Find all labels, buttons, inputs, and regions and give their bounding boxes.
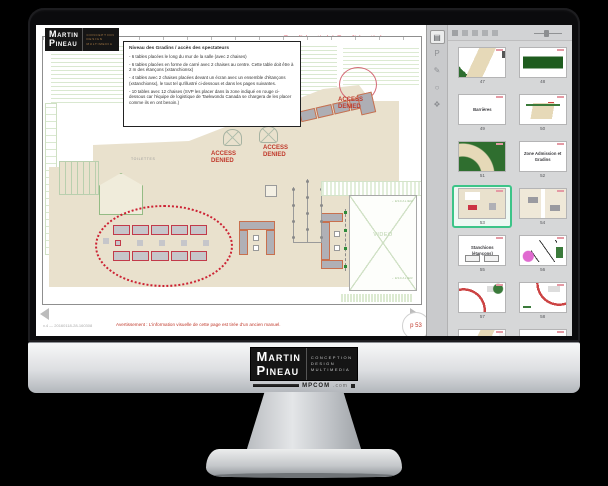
note-bullet: 10 tables avec 12 chaises (SVP les place…: [129, 89, 295, 106]
thumbnail-image[interactable]: [519, 282, 567, 313]
escalier-label: ESCALIER: [392, 276, 413, 280]
monitor-chin: Martin Pineau CONCEPTION DESIGN MULTIMED…: [28, 342, 580, 393]
stanchion-line: [293, 187, 294, 243]
thumbnail-number: 50: [540, 126, 545, 131]
monitor-brand: Martin Pineau CONCEPTION DESIGN MULTIMED…: [28, 343, 580, 393]
brand-tagline: CONCEPTION DESIGN MULTIMEDIA: [306, 348, 357, 379]
screen: Martin Pineau CONCEPTION DESIGN MULTIMED…: [36, 25, 572, 336]
page-thumbnail-51[interactable]: 51: [452, 138, 512, 181]
thumbnail-art: [459, 330, 505, 336]
logo-name-bottom: Pineau: [49, 39, 78, 48]
video-label: VIDEO: [373, 232, 393, 238]
page-thumbnail-48[interactable]: 48: [513, 44, 572, 87]
thumbnail-image[interactable]: [458, 188, 506, 219]
chairs-row: [115, 240, 121, 246]
document-logo: Martin Pineau CONCEPTION DESIGN MULTIMED…: [45, 28, 119, 51]
table: [132, 225, 149, 235]
thumbnail-number: 56: [540, 267, 545, 272]
stanchions-group: [289, 179, 325, 245]
table: [239, 221, 275, 230]
page-thumbnail-58[interactable]: 58: [513, 279, 572, 322]
table: [190, 251, 207, 261]
page-thumbnail-60[interactable]: Rideaux 60: [513, 326, 572, 336]
access-denied-label: ACCESS DENIED: [263, 145, 295, 159]
thumbnail-image[interactable]: [458, 47, 506, 78]
table: [190, 225, 207, 235]
barrier-posts: [344, 211, 347, 214]
note-bullet: 4 tables avec 2 chaises placées devant u…: [129, 75, 295, 86]
access-denied-label: ACCESS DENIED: [338, 97, 370, 111]
table: [151, 251, 168, 261]
toolbar-buttons-icon[interactable]: [452, 30, 458, 36]
stanchion-line: [307, 179, 308, 243]
red-dotted-zone: [95, 205, 233, 287]
brand-wordmark: Martin Pineau: [251, 348, 305, 379]
thumbnail-art: [459, 189, 505, 218]
table: [171, 225, 188, 235]
slide-canvas: TOILETTES ACCESS DENIED ACCESS DENIED AC…: [42, 36, 422, 305]
table: [321, 260, 343, 269]
page-thumbnail-49[interactable]: Barrières 49: [452, 91, 512, 134]
thumbnail-image[interactable]: [519, 188, 567, 219]
thumbnail-number: 49: [480, 126, 485, 131]
chair: [334, 231, 340, 237]
thumbnail-image[interactable]: Rideaux: [519, 329, 567, 336]
brand-domain-suffix: .com: [333, 383, 348, 389]
thumbnail-art: [459, 142, 505, 171]
thumbnail-number: 51: [480, 173, 485, 178]
panel-rail: ▤ P ✎ ○ ❖: [427, 25, 448, 336]
thumbnail-image[interactable]: [519, 94, 567, 125]
page-thumbnail-47[interactable]: 47: [452, 44, 512, 87]
square-table-group: [239, 221, 275, 255]
brand-url: MPCOM .com: [253, 383, 355, 389]
note-bullet: 6 tables placées en forme de carré avec …: [129, 62, 295, 73]
thumbnail-art: [520, 142, 566, 171]
thumbnail-art: [520, 330, 566, 336]
table: [113, 251, 130, 261]
turnstile-icon: [259, 126, 278, 143]
page-thumbnail-59[interactable]: 59: [452, 326, 512, 336]
thumbnail-detail-boxes: [465, 255, 499, 262]
logo-tagline: CONCEPTION DESIGN MULTIMEDIA: [82, 28, 117, 51]
stanchion-posts: [292, 188, 295, 191]
warning-label: Avertissement : L'information visuelle d…: [116, 322, 281, 327]
table: [132, 251, 149, 261]
thumbnail-number: 47: [480, 79, 485, 84]
brand-name-bottom: Pineau: [256, 364, 300, 378]
thumbnails-toolbar: [448, 25, 572, 41]
logo-tagline-line: MULTIMEDIA: [86, 42, 114, 47]
thumbnail-art: [459, 283, 505, 312]
thumbnail-image[interactable]: [458, 329, 506, 336]
table-row: [113, 225, 207, 235]
table: [113, 225, 130, 235]
thumbnail-number: 48: [540, 79, 545, 84]
page-thumbnail-53-selected[interactable]: 53: [452, 185, 512, 228]
notes-box: Niveau des Gradins / accès des spectateu…: [123, 41, 301, 127]
stairs-shape: [59, 161, 99, 195]
page-thumbnail-55[interactable]: Stanchions (étançons) 55: [452, 232, 512, 275]
table: [239, 230, 248, 255]
comments-panel-icon[interactable]: ○: [430, 81, 445, 95]
page-thumbnail-54[interactable]: 54: [513, 185, 572, 228]
hatched-band-bottom: [341, 294, 413, 302]
video-screen-zone: VIDEO ESCALIER ESCALIER: [349, 195, 417, 291]
table: [171, 251, 188, 261]
brand-rule: [253, 384, 299, 387]
bookmarks-panel-icon[interactable]: P: [430, 47, 445, 61]
desktop: { "monitor": { "brand": { "name_top": "M…: [0, 0, 608, 486]
page-thumbnail-50[interactable]: 50: [513, 91, 572, 134]
page-thumbnail-52[interactable]: Zone Admission et Gradins 52: [513, 138, 572, 181]
thumbnail-number: 57: [480, 314, 485, 319]
thumbnail-image[interactable]: Barrières: [458, 94, 506, 125]
thumbnail-number: 55: [480, 267, 485, 272]
access-denied-label: ACCESS DENIED: [211, 151, 243, 165]
monitor-stand-neck: [246, 392, 362, 452]
chair: [334, 245, 340, 251]
version-label: v.4 — 20160118-28-160308: [43, 323, 92, 328]
turnstile-icon: [223, 129, 242, 146]
thumbnails-panel: ▤ P ✎ ○ ❖ 47 48 Barrières 49: [426, 25, 572, 336]
brand-domain: MPCOM: [302, 383, 330, 389]
monitor-stand-base-shadow: [214, 473, 394, 478]
thumbnail-art: [520, 48, 566, 77]
thumbnail-art: [520, 236, 566, 265]
notes-title: Niveau des Gradins / accès des spectateu…: [129, 46, 295, 51]
thumbnail-art: [520, 95, 566, 124]
table: [151, 225, 168, 235]
thumbnail-art: [459, 48, 505, 77]
document-pane: Martin Pineau CONCEPTION DESIGN MULTIMED…: [36, 25, 426, 336]
thumbnails-grid: 47 48 Barrières 49 50 51 Zone Admission …: [448, 40, 572, 336]
annotations-panel-icon[interactable]: ✎: [430, 64, 445, 78]
thumbnail-art: [459, 95, 505, 124]
chair: [253, 245, 259, 251]
table: [266, 230, 275, 255]
thumbnail-number: 53: [480, 220, 485, 225]
thumbnail-image[interactable]: [519, 235, 567, 266]
brand-name-top: Martin: [256, 350, 300, 364]
escalier-label: ESCALIER: [392, 199, 413, 203]
thumbnail-art: [520, 189, 566, 218]
previous-page-button[interactable]: [40, 308, 49, 320]
chair: [253, 235, 259, 241]
page-thumbnail-56[interactable]: 56: [513, 232, 572, 275]
page-thumbnail-57[interactable]: 57: [452, 279, 512, 322]
thumbnail-image[interactable]: Stanchions (étançons): [458, 235, 506, 266]
signatures-panel-icon[interactable]: ❖: [430, 98, 445, 112]
floor-box: [265, 185, 277, 197]
hatched-band: [321, 181, 422, 196]
thumbnail-number: 58: [540, 314, 545, 319]
thumbnail-art: [520, 283, 566, 312]
note-bullet: 6 tables placées le long du mur de la sa…: [129, 54, 295, 60]
toilettes-label: TOILETTES: [131, 157, 155, 161]
thumbnail-image[interactable]: Zone Admission et Gradins: [519, 141, 567, 172]
logo-wordmark: Martin Pineau: [45, 28, 82, 51]
thumbnail-image[interactable]: [458, 282, 506, 313]
barrier-dashed-line: [345, 209, 346, 271]
pages-panel-icon[interactable]: ▤: [430, 30, 445, 44]
brand-square-icon: [351, 384, 355, 388]
thumbnail-zoom-knob[interactable]: [544, 30, 549, 37]
brand-tagline-line: MULTIMEDIA: [311, 367, 353, 373]
table-row: [113, 251, 207, 261]
stanchion-line: [293, 242, 322, 243]
thumbnail-image[interactable]: [458, 141, 506, 172]
brand-box: Martin Pineau CONCEPTION DESIGN MULTIMED…: [250, 347, 357, 380]
thumbnail-image[interactable]: [519, 47, 567, 78]
thumbnail-number: 52: [540, 173, 545, 178]
thumbnail-number: 54: [540, 220, 545, 225]
